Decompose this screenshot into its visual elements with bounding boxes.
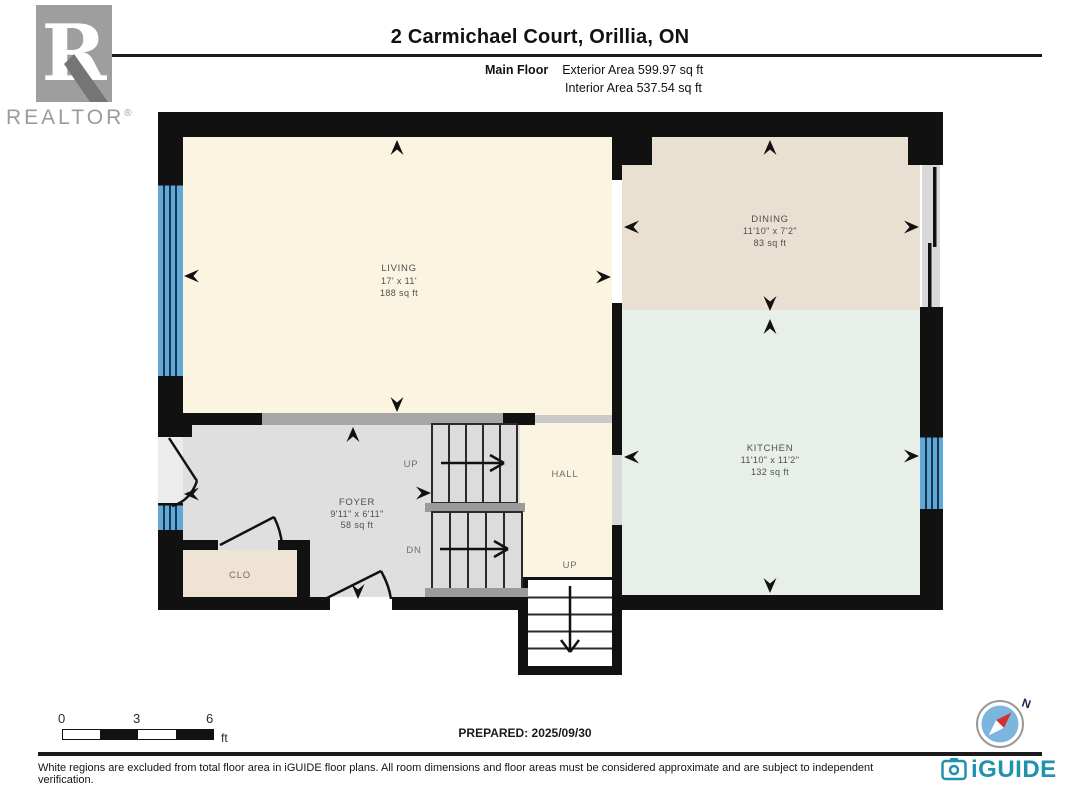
floor-name-label: Main Floor: [485, 63, 548, 77]
realtor-wordmark: REALTOR®: [6, 106, 132, 130]
scale-unit: ft: [221, 731, 228, 745]
room-hall-label: HALL: [552, 469, 579, 480]
iguide-logo: iGUIDE: [941, 756, 1057, 784]
sliding-door-panel-lower: [928, 243, 932, 309]
footer-divider: [38, 752, 1042, 756]
prepared-date: PREPARED: 2025/09/30: [420, 726, 630, 740]
svg-text:17' x 11': 17' x 11': [381, 276, 417, 286]
page-title: 2 Carmichael Court, Orillia, ON: [0, 26, 1080, 49]
stair-down: [432, 512, 522, 590]
iguide-camera-icon: [941, 757, 967, 783]
svg-text:11'10" x 7'2": 11'10" x 7'2": [743, 226, 797, 236]
realtor-word-text: REALTOR: [6, 106, 124, 129]
hall-top-opening: [535, 415, 612, 423]
floorplan-page: LIVING 17' x 11' 188 sq ft DINING 11'10"…: [0, 0, 1080, 810]
stair-up-label: UP: [404, 459, 419, 470]
compass: N: [972, 694, 1032, 752]
disclaimer-text: White regions are excluded from total fl…: [38, 762, 908, 786]
room-closet-label: CLO: [229, 570, 251, 581]
stair-down-label: DN: [406, 545, 421, 556]
svg-text:9'11" x 6'11": 9'11" x 6'11": [330, 509, 383, 519]
svg-text:188 sq ft: 188 sq ft: [380, 288, 418, 298]
svg-text:132 sq ft: 132 sq ft: [751, 467, 789, 477]
window-foyer-left: [158, 503, 183, 530]
svg-text:KITCHEN: KITCHEN: [747, 443, 794, 454]
hall-kitchen-opening: [612, 455, 622, 525]
stair-landing: [425, 503, 525, 512]
scale-bar: [62, 729, 217, 742]
registered-symbol: ®: [124, 108, 131, 119]
svg-text:58 sq ft: 58 sq ft: [341, 520, 374, 530]
scale-tick-0: 0: [58, 711, 65, 726]
exterior-area-value: Exterior Area 599.97 sq ft: [562, 63, 703, 77]
hall-up-label: UP: [563, 560, 578, 571]
svg-text:DINING: DINING: [751, 214, 788, 225]
scale-tick-6: 6: [206, 711, 213, 726]
floor-info: Main FloorExterior Area 599.97 sq ft: [485, 63, 703, 77]
realtor-r-glyph: R: [42, 8, 108, 99]
room-living-label: LIVING 17' x 11' 188 sq ft: [380, 263, 418, 298]
stair-up: [432, 424, 517, 503]
iguide-wordmark: iGUIDE: [971, 756, 1057, 784]
header-divider: [38, 54, 1042, 57]
floor-plan-svg: LIVING 17' x 11' 188 sq ft DINING 11'10"…: [0, 0, 1080, 810]
interior-area-value: Interior Area 537.54 sq ft: [565, 81, 702, 95]
svg-text:11'10" x 11'2": 11'10" x 11'2": [741, 455, 800, 465]
svg-text:LIVING: LIVING: [381, 263, 416, 274]
svg-text:FOYER: FOYER: [339, 497, 375, 508]
room-hall-floor: [520, 415, 612, 577]
sliding-door-panel-upper: [933, 167, 937, 247]
window-kitchen-right: [920, 435, 943, 512]
stair-lower-landing: [425, 588, 528, 597]
scale-tick-3: 3: [133, 711, 140, 726]
window-living-left: [158, 183, 183, 379]
svg-text:83 sq ft: 83 sq ft: [754, 238, 787, 248]
entry-door-opening: [158, 437, 183, 505]
compass-north-label: N: [1020, 696, 1032, 712]
